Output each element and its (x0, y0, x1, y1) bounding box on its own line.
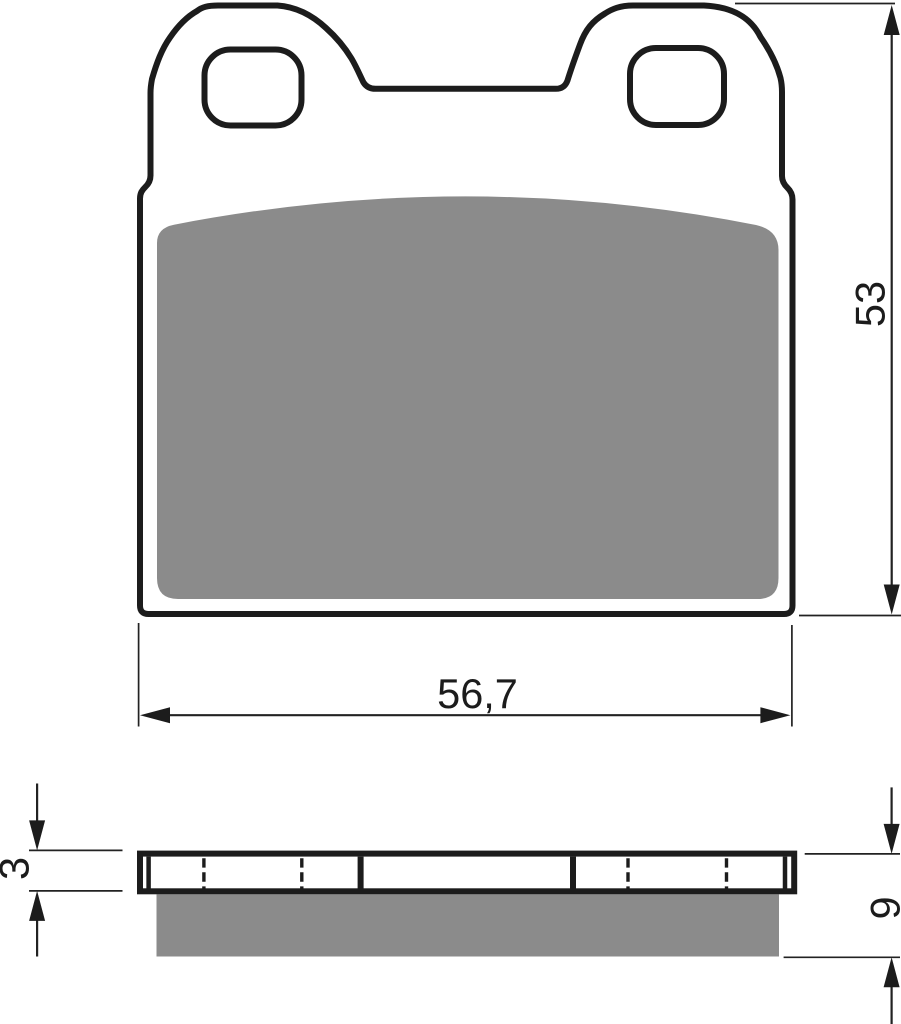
svg-text:9: 9 (862, 896, 901, 919)
svg-text:56,7: 56,7 (437, 670, 518, 717)
svg-text:53: 53 (847, 281, 894, 327)
svg-text:3: 3 (0, 857, 38, 880)
